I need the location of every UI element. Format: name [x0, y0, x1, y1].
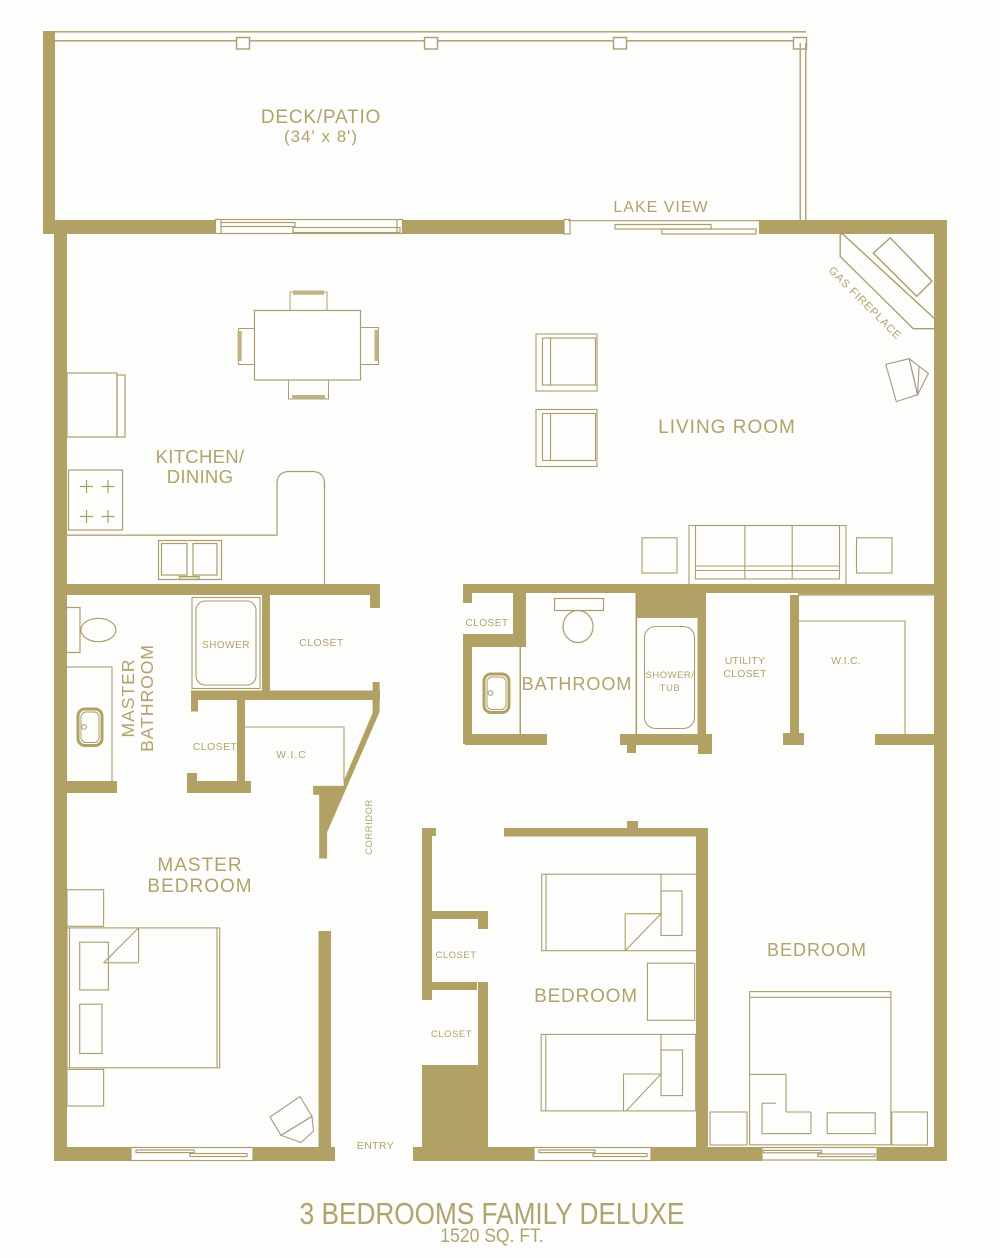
svg-text:CLOSET: CLOSET — [723, 668, 767, 680]
svg-text:SHOWER/: SHOWER/ — [646, 670, 695, 681]
svg-text:CORRIDOR: CORRIDOR — [364, 799, 375, 855]
svg-text:CLOSET: CLOSET — [193, 741, 238, 753]
svg-text:W.I.C.: W.I.C. — [831, 655, 861, 667]
svg-text:TUB: TUB — [660, 683, 681, 694]
svg-text:GAS FIREPLACE: GAS FIREPLACE — [826, 265, 904, 343]
svg-text:CLOSET: CLOSET — [435, 950, 476, 961]
svg-text:BATHROOM: BATHROOM — [137, 644, 157, 752]
svg-text:CLOSET: CLOSET — [299, 637, 344, 649]
svg-text:LAKE VIEW: LAKE VIEW — [613, 199, 708, 216]
svg-text:SHOWER: SHOWER — [202, 640, 250, 651]
svg-text:(34' x 8'): (34' x 8') — [284, 127, 358, 146]
svg-text:BEDROOM: BEDROOM — [147, 876, 252, 897]
svg-text:BEDROOM: BEDROOM — [534, 986, 638, 1007]
svg-text:BEDROOM: BEDROOM — [767, 940, 867, 960]
svg-text:UTILITY: UTILITY — [725, 655, 766, 667]
svg-text:MASTER: MASTER — [118, 659, 138, 738]
svg-text:DINING: DINING — [167, 466, 234, 487]
svg-text:MASTER: MASTER — [157, 855, 242, 876]
svg-text:DECK/PATIO: DECK/PATIO — [261, 107, 381, 128]
svg-text:1520 SQ. FT.: 1520 SQ. FT. — [440, 1224, 543, 1246]
svg-text:LIVING ROOM: LIVING ROOM — [658, 417, 796, 438]
svg-text:ENTRY: ENTRY — [357, 1140, 394, 1152]
svg-text:CLOSET: CLOSET — [431, 1029, 472, 1040]
svg-text:W.I.C: W.I.C — [276, 749, 307, 761]
svg-text:CLOSET: CLOSET — [465, 618, 508, 629]
svg-text:KITCHEN/: KITCHEN/ — [156, 446, 245, 467]
svg-text:BATHROOM: BATHROOM — [522, 674, 633, 694]
